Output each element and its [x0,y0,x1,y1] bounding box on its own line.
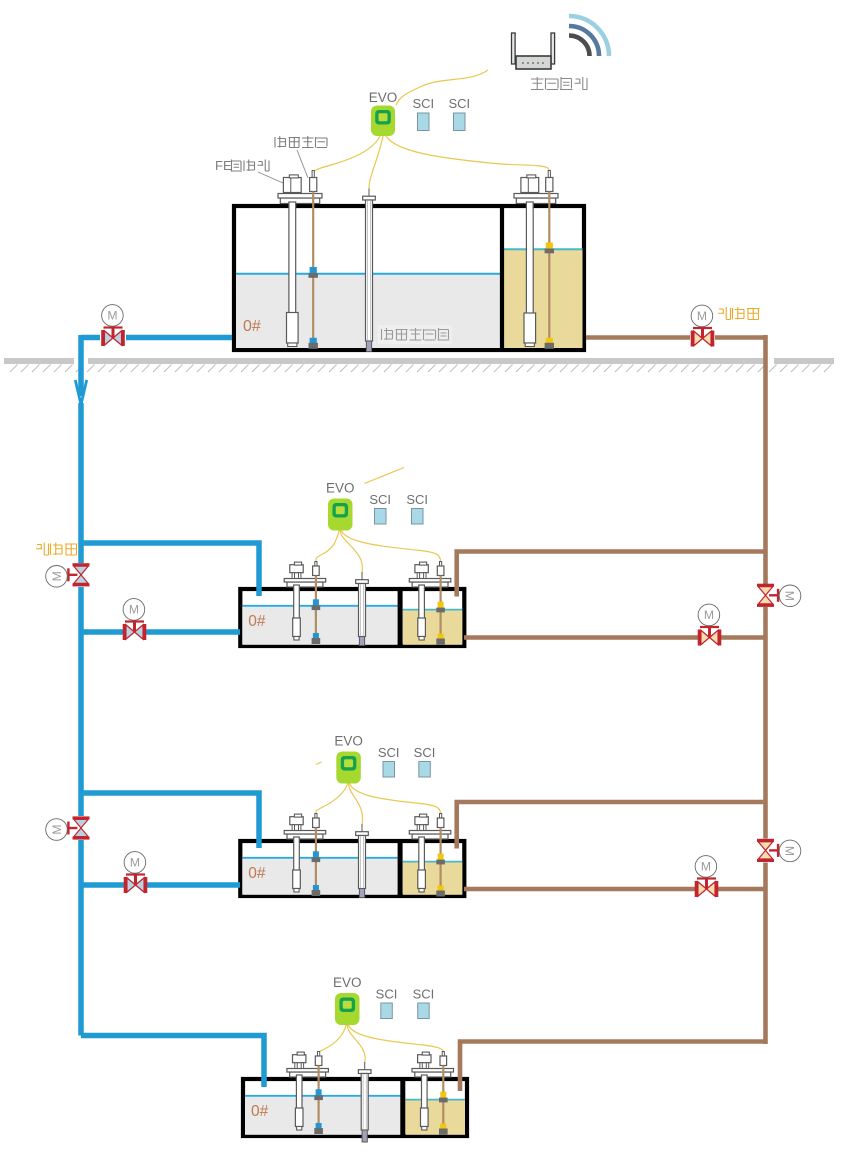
svg-text:SCI: SCI [412,96,434,111]
svg-text:FE: FE [215,158,232,173]
svg-text:M: M [50,824,64,834]
svg-text:SCI: SCI [378,745,400,760]
svg-text:SCI: SCI [369,492,391,507]
svg-text:M: M [107,309,117,323]
svg-text:M: M [783,846,797,856]
svg-text:SCI: SCI [448,96,470,111]
svg-text:SCI: SCI [413,987,435,1002]
svg-text:M: M [130,856,140,870]
svg-text:M: M [50,571,64,581]
svg-text:EVO: EVO [333,975,362,990]
svg-text:SCI: SCI [406,492,428,507]
svg-text:EVO: EVO [334,734,363,749]
svg-text:M: M [704,608,714,622]
svg-text:EVO: EVO [326,481,355,496]
svg-text:EVO: EVO [369,90,398,105]
svg-text:SCI: SCI [414,745,436,760]
svg-text:0#: 0# [243,318,261,335]
svg-text:0#: 0# [248,865,266,882]
svg-text:M: M [783,591,797,601]
svg-text:0#: 0# [248,613,266,630]
svg-text:M: M [697,309,707,323]
svg-text:0#: 0# [251,1103,269,1120]
svg-text:M: M [701,860,711,874]
svg-text:M: M [129,603,139,617]
svg-text:SCI: SCI [376,987,398,1002]
